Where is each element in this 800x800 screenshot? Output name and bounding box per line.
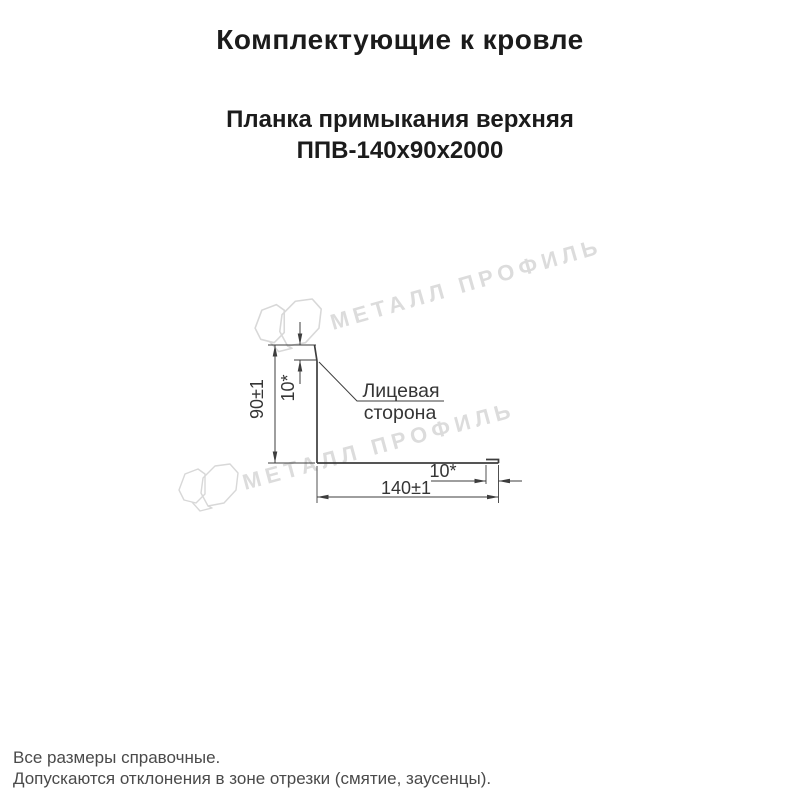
footer-note-line2: Допускаются отклонения в зоне отрезки (с… bbox=[13, 768, 713, 789]
dim-top-hem-label: 10* bbox=[278, 374, 298, 401]
metal-profil-logo-icon bbox=[255, 299, 321, 352]
dim-width-label: 140±1 bbox=[381, 478, 431, 498]
watermark-top: МЕТАЛЛ ПРОФИЛЬ bbox=[255, 233, 605, 351]
arrow-left-icon bbox=[499, 479, 511, 484]
arrow-left-icon bbox=[317, 495, 329, 500]
dim-height-label: 90±1 bbox=[247, 379, 267, 419]
arrow-right-icon bbox=[487, 495, 499, 500]
arrow-right-icon bbox=[475, 479, 487, 484]
face-side-label-line2: сторона bbox=[364, 402, 437, 424]
technical-drawing: МЕТАЛЛ ПРОФИЛЬ МЕТАЛЛ ПРОФИЛЬ 9 bbox=[0, 0, 800, 800]
arrow-up-icon bbox=[298, 360, 303, 372]
face-side-leader: Лицевая сторона bbox=[319, 362, 444, 424]
face-side-label-line1: Лицевая bbox=[362, 380, 439, 402]
page: Комплектующие к кровле Планка примыкания… bbox=[0, 0, 800, 800]
footer-notes: Все размеры справочные. Допускаются откл… bbox=[13, 747, 713, 789]
watermark-text: МЕТАЛЛ ПРОФИЛЬ bbox=[327, 233, 604, 335]
watermark-middle: МЕТАЛЛ ПРОФИЛЬ bbox=[179, 397, 518, 511]
dimension-width: 140±1 bbox=[317, 465, 499, 503]
profile-top-hem bbox=[315, 345, 318, 361]
footer-note-line1: Все размеры справочные. bbox=[13, 747, 713, 768]
dimension-height: 90±1 bbox=[247, 345, 316, 463]
dim-end-hem-label: 10* bbox=[429, 461, 456, 481]
dimension-end-hem: 10* bbox=[429, 461, 522, 484]
metal-profil-logo-icon bbox=[179, 464, 238, 511]
